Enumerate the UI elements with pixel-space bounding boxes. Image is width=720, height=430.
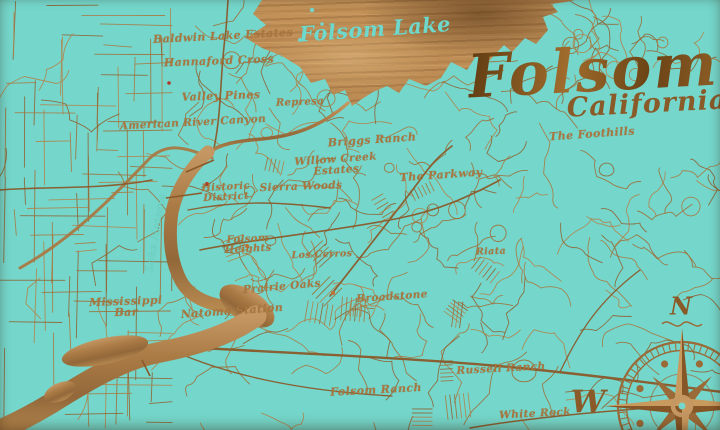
street-path bbox=[384, 35, 430, 67]
street-path bbox=[410, 19, 428, 29]
street-path bbox=[395, 0, 443, 22]
compass-tick bbox=[675, 343, 676, 351]
street-path bbox=[441, 373, 453, 374]
street-path bbox=[404, 9, 422, 19]
street-path bbox=[350, 34, 368, 53]
street-path bbox=[408, 16, 426, 26]
street-path bbox=[388, 41, 421, 81]
compass-dot bbox=[636, 385, 643, 392]
street-path bbox=[412, 23, 430, 33]
street-path bbox=[440, 365, 452, 366]
street-path bbox=[144, 210, 145, 273]
street-path bbox=[402, 5, 420, 15]
street-path bbox=[411, 35, 459, 63]
street-path bbox=[101, 75, 147, 76]
street-path bbox=[441, 377, 453, 378]
street-path bbox=[441, 381, 453, 382]
street-path bbox=[170, 9, 171, 62]
street-path bbox=[406, 12, 424, 22]
compass-dot bbox=[661, 360, 668, 367]
street-path bbox=[284, 0, 320, 18]
compass-tick bbox=[688, 343, 689, 351]
wood-map: Folsom California N W Folsom LakeBaldwin… bbox=[0, 0, 720, 430]
compass-tick bbox=[619, 412, 627, 413]
compass-dot bbox=[636, 420, 643, 427]
street-path bbox=[483, 9, 528, 41]
street-path bbox=[440, 369, 452, 370]
lake-islands bbox=[298, 8, 324, 42]
street-path bbox=[322, 0, 346, 26]
street-path bbox=[36, 141, 69, 142]
compass-dot bbox=[696, 360, 703, 367]
compass-tick bbox=[619, 399, 627, 400]
map-graphic bbox=[0, 0, 720, 430]
street-path bbox=[363, 5, 371, 59]
